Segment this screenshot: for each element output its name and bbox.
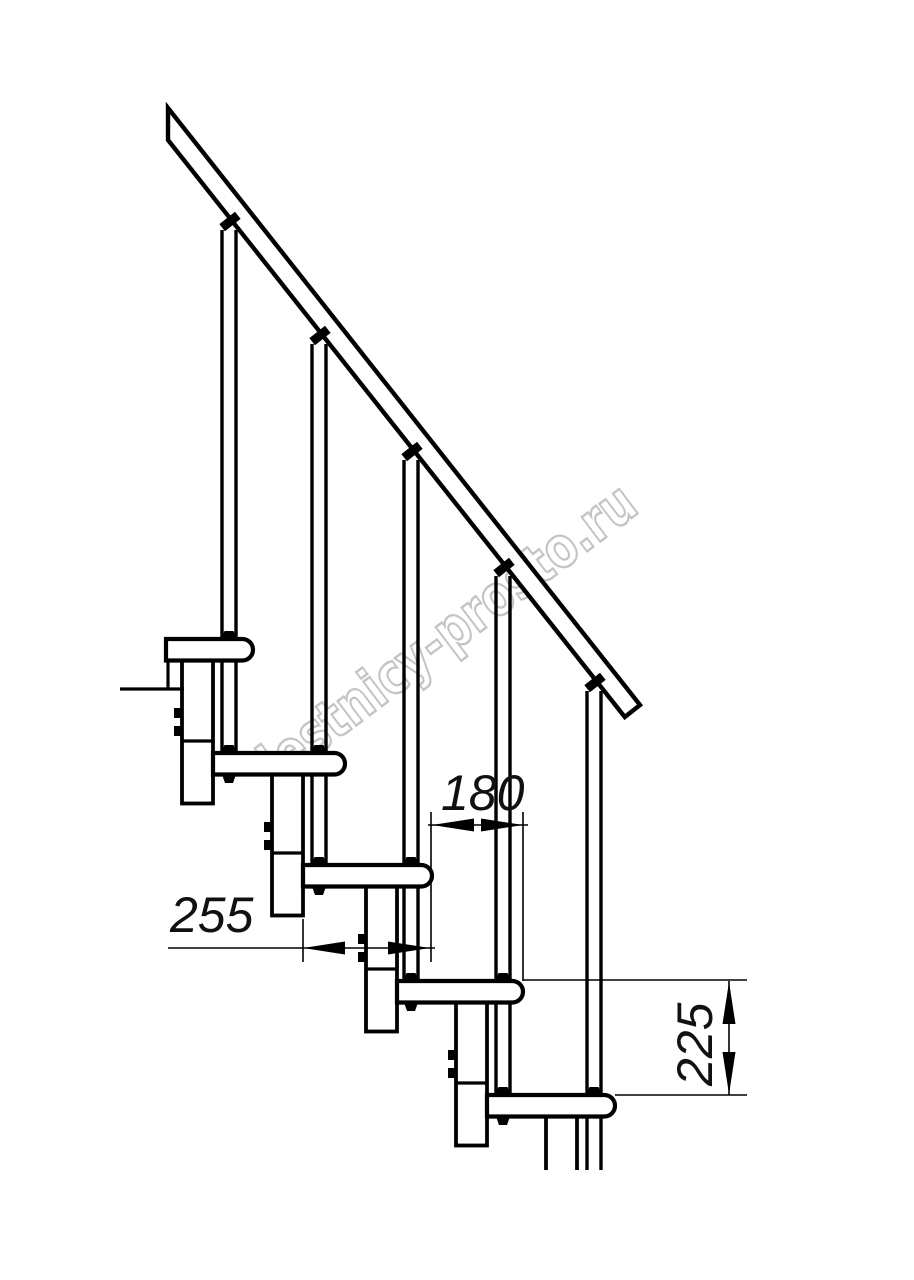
dim-225-arrow-down-icon — [723, 1052, 736, 1094]
dim-225-arrow-up-icon — [723, 982, 736, 1024]
stringer-module-5 — [546, 1117, 577, 1171]
dim-225-label: 225 — [667, 1002, 723, 1087]
rod-nut — [222, 775, 236, 784]
stringer-module-1 — [182, 661, 213, 804]
tread-5 — [487, 1095, 615, 1117]
tread-2 — [213, 753, 345, 775]
top-step-bracket — [120, 661, 184, 690]
dim-255-label: 255 — [169, 887, 254, 943]
tread-3 — [303, 865, 432, 887]
watermark-text: lestnicy-prosto.ru — [247, 470, 649, 796]
dimension-180: 180 — [428, 765, 528, 981]
baluster-3 — [404, 460, 418, 981]
rod-nut — [404, 1003, 418, 1012]
bolt — [358, 934, 367, 944]
bolt — [174, 708, 183, 718]
watermark: lestnicy-prosto.ru — [247, 470, 649, 796]
dimension-225: 225 — [523, 980, 747, 1095]
stringer-module-4 — [456, 1003, 487, 1146]
bolt — [264, 840, 273, 850]
dim-255-arrow-left-icon — [303, 942, 345, 955]
dim-180-label: 180 — [441, 765, 525, 821]
bolt — [264, 822, 273, 832]
staircase-drawing-page: lestnicy-prosto.ru — [0, 0, 914, 1280]
baluster-2 — [312, 344, 326, 865]
bolt — [358, 952, 367, 962]
bolt — [448, 1068, 457, 1078]
stringer-module-3 — [366, 887, 397, 1032]
staircase-side-view-drawing: lestnicy-prosto.ru — [0, 0, 914, 1280]
bolt — [448, 1050, 457, 1060]
stringer-module-2 — [272, 775, 303, 916]
dim-255-arrow-right-icon — [388, 942, 430, 955]
rod-nut — [312, 887, 326, 896]
bolt — [174, 726, 183, 736]
baluster-1 — [222, 230, 236, 753]
tread-1 — [166, 639, 253, 661]
baluster-4 — [496, 576, 510, 1095]
tread-4 — [397, 981, 523, 1003]
rod-nut — [496, 1117, 510, 1126]
